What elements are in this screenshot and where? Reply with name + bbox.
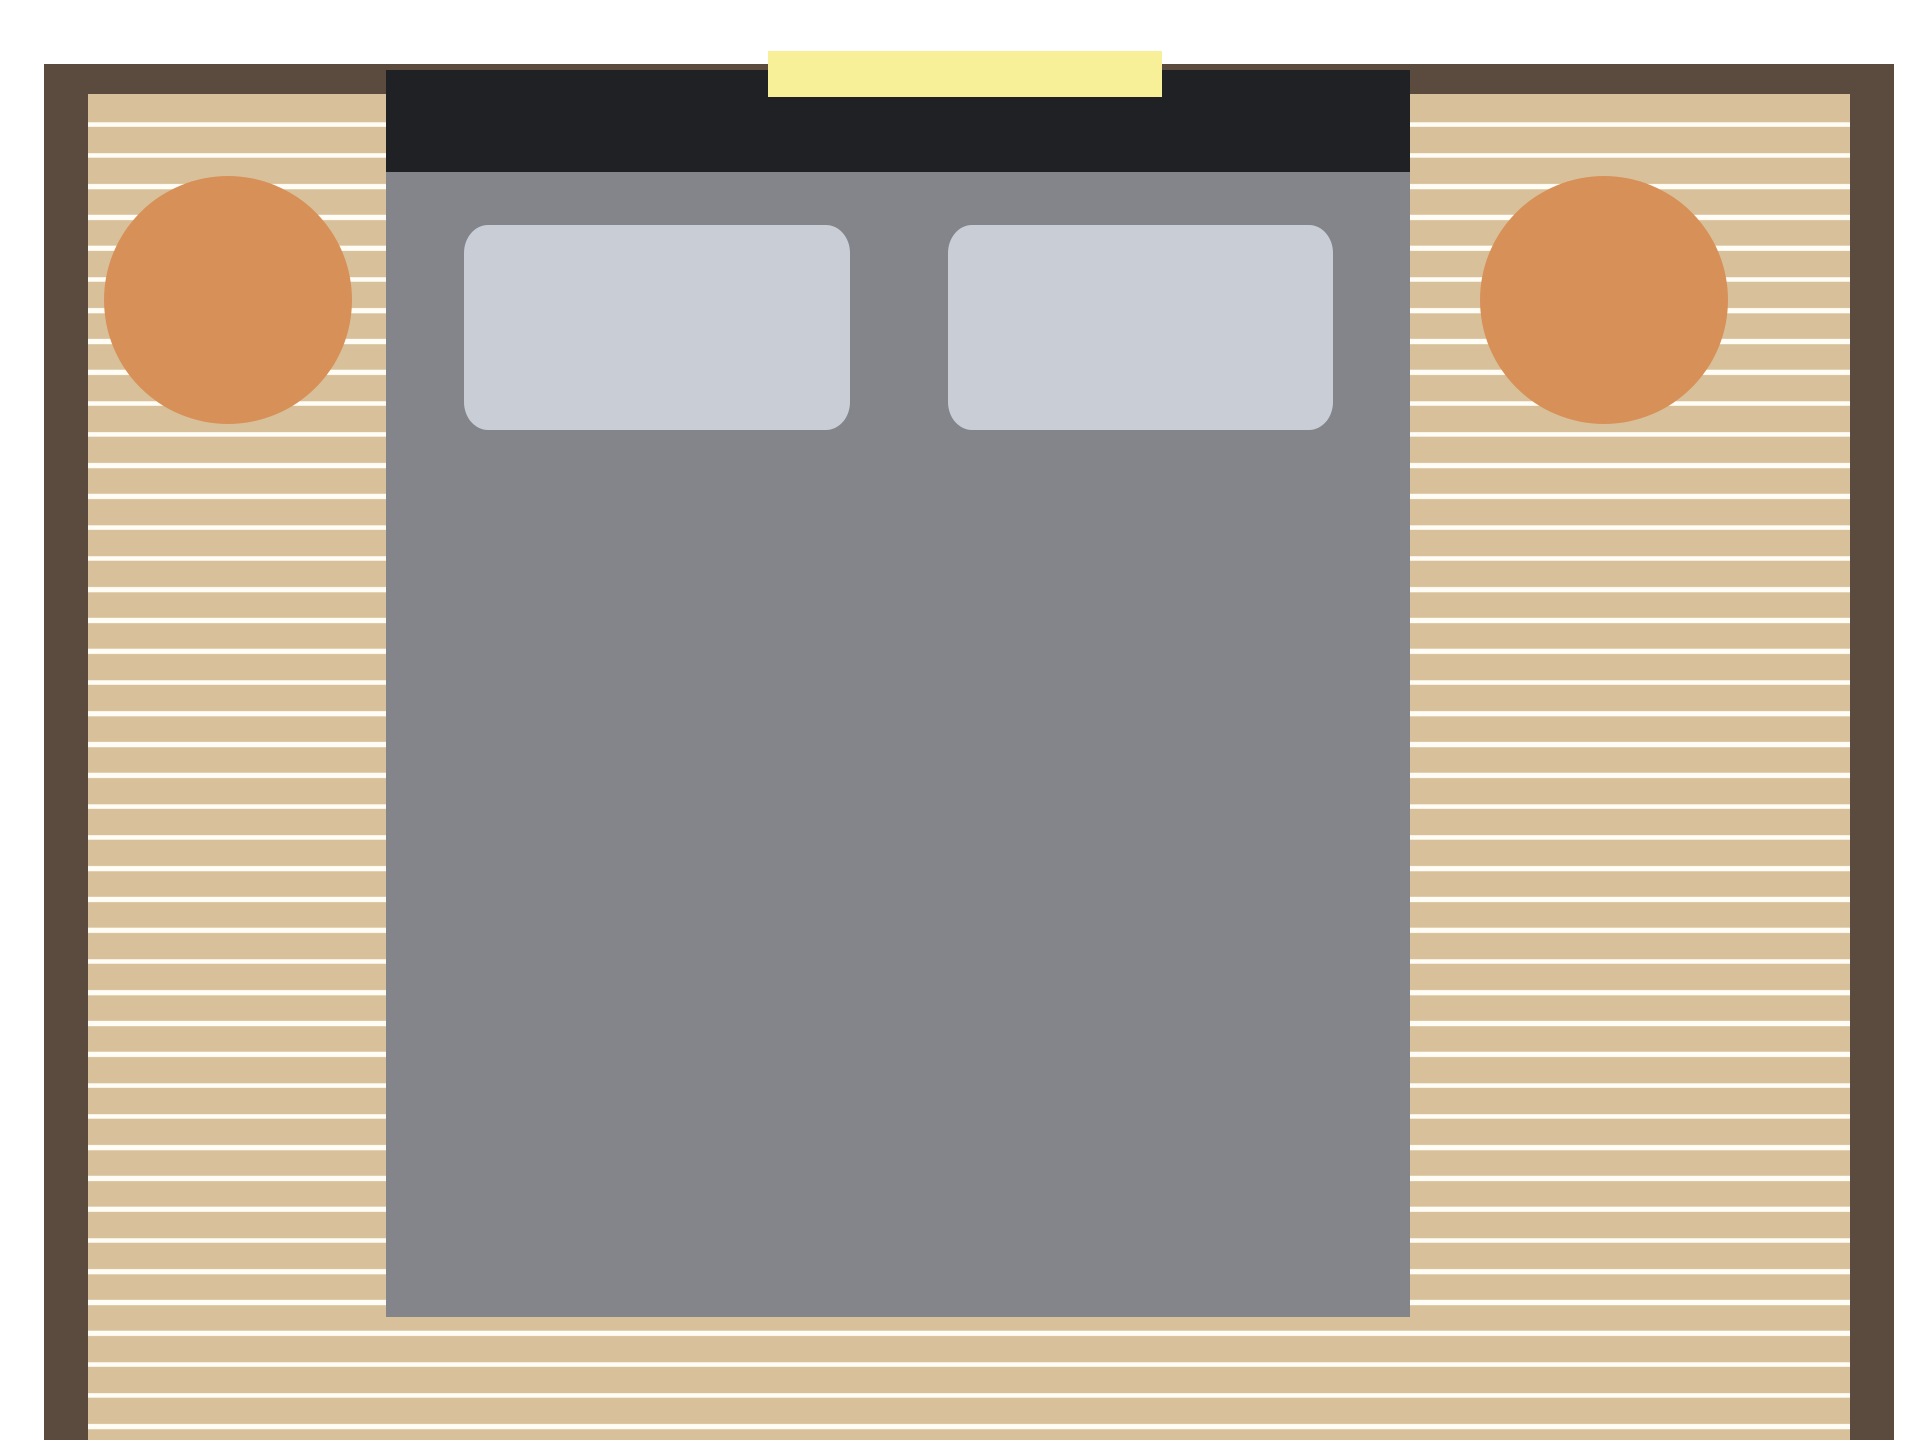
pillow-right	[948, 225, 1333, 430]
room-walls	[44, 64, 1894, 1440]
window-opening	[768, 51, 1162, 97]
pillow-left	[464, 225, 850, 430]
nightstand-right	[1480, 176, 1728, 424]
floor-plan-canvas	[0, 0, 1920, 1440]
nightstand-left	[104, 176, 352, 424]
bed-mattress	[386, 172, 1410, 1317]
